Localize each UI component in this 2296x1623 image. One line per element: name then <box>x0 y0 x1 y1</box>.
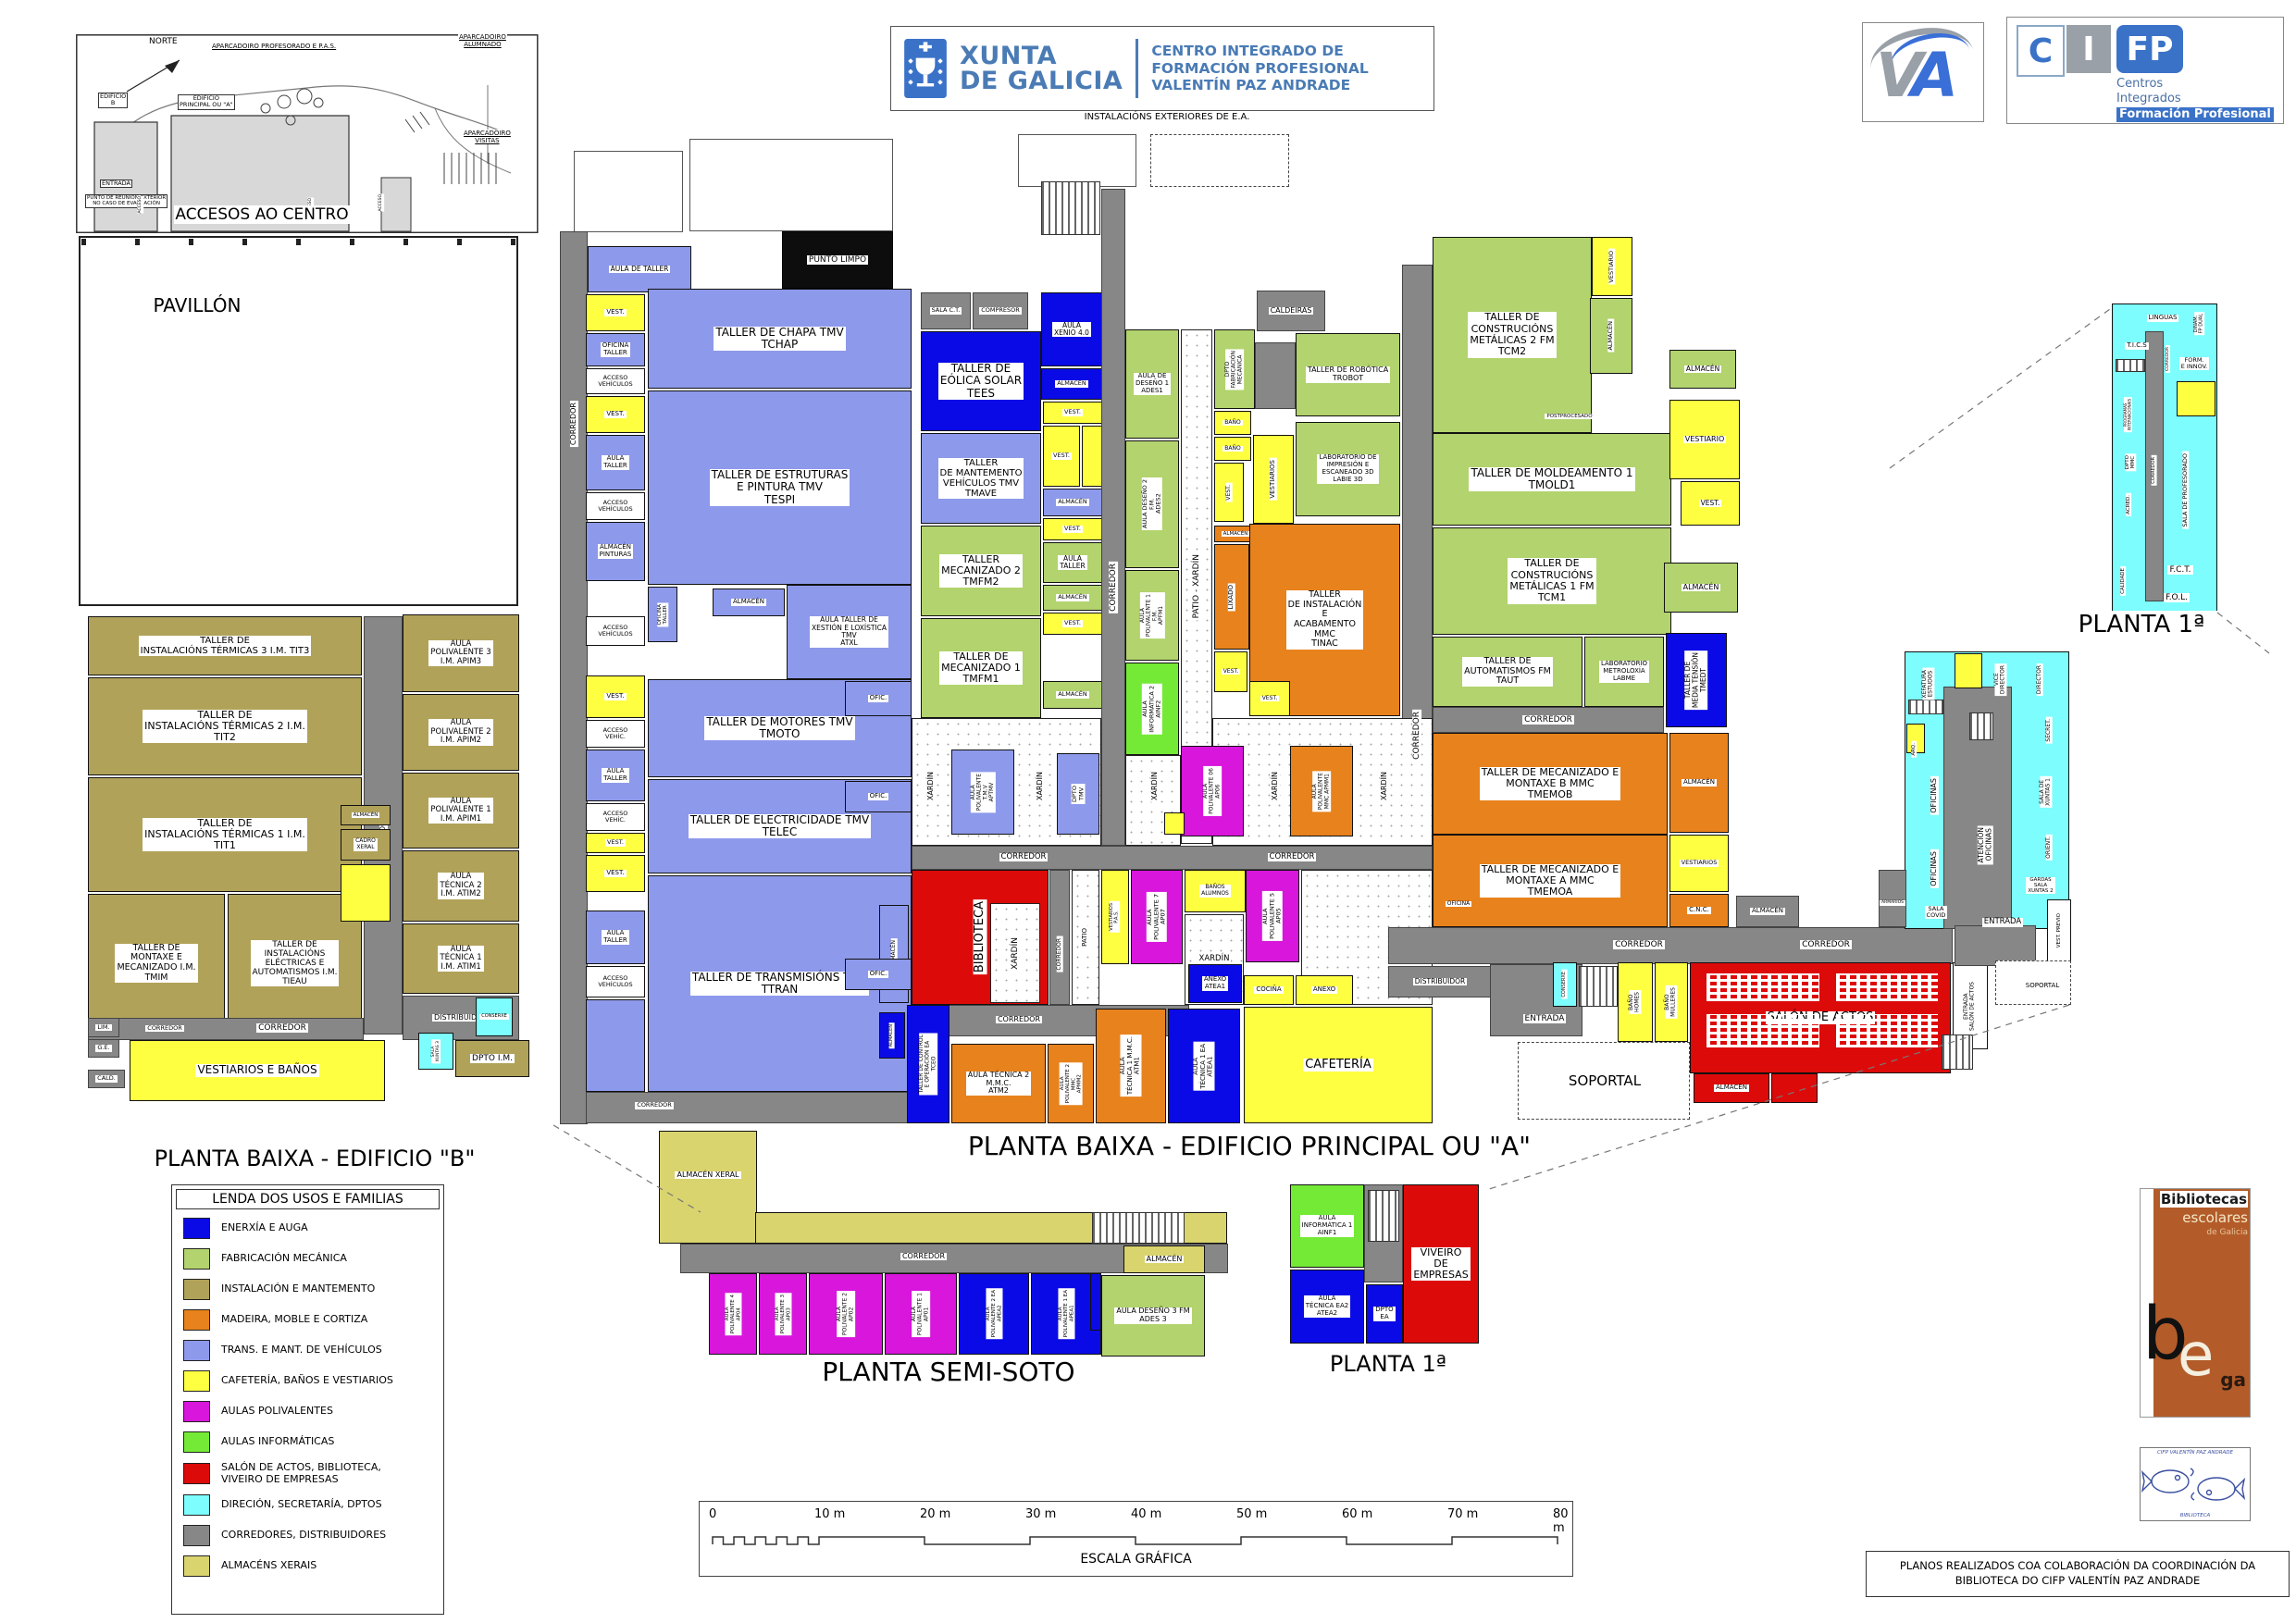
room-label: XEFATURA ESTUDOS <box>1922 668 1934 700</box>
room-label: SOPORTAL <box>2024 983 2061 990</box>
plan-title: PLANTA 1ª <box>1314 1351 1462 1377</box>
bibliotecas-escolares-logo: Bibliotecas escolares de Galicia b e ga <box>2140 1188 2251 1418</box>
belogo-e: e <box>2178 1326 2214 1385</box>
room-label: CADRO XERAL <box>354 838 378 850</box>
room-label: AULA INFORMÁTICA 1 AINF1 <box>1300 1215 1355 1236</box>
room-oficinas: OFICINAS <box>1921 838 1947 899</box>
plan-title: PLANTA BAIXA - EDIFICIO PRINCIPAL OU "A" <box>949 1131 1550 1161</box>
belogo-sub: escolares <box>2182 1209 2248 1226</box>
area <box>1969 712 1993 740</box>
room-label: OFICINAS <box>1930 776 1939 815</box>
belogo-title: Bibliotecas <box>2160 1191 2248 1208</box>
room-label: PROGRAMAS INTERNACIONAIS <box>2124 397 2132 432</box>
legend-swatch <box>183 1370 210 1392</box>
room-label: SOPORTAL <box>1567 1073 1643 1089</box>
legend-swatch <box>183 1309 210 1331</box>
legend-swatch <box>183 1401 210 1422</box>
room-label: XARDÍN <box>1036 770 1045 802</box>
legend-swatch <box>183 1463 210 1484</box>
room-label: CORREDOR <box>1800 940 1852 949</box>
stamp-bottom-text: BIBLIOTECA <box>2141 1513 2250 1518</box>
room-label: F.O.L. <box>2164 593 2190 602</box>
room-label: T.I.C.S <box>2125 342 2149 350</box>
room-almac-n: ALMACÉN <box>341 805 391 825</box>
legend-label: INSTALACIÓN E MANTEMENTO <box>221 1283 375 1295</box>
room-xard-n: XARDÍN <box>922 757 940 816</box>
legend-label: CORREDORES, DISTRIBUIDORES <box>221 1530 386 1542</box>
room-entrada: ENTRADA <box>1969 914 2036 931</box>
room-label: XARDÍN <box>927 770 936 802</box>
room-dpto: DPTO MMC <box>2117 446 2143 479</box>
room-label: CORREDOR <box>996 1016 1042 1024</box>
room-xard-n: XARDÍN <box>990 903 1040 1003</box>
legend-label: FABRICACIÓN MECÁNICA <box>221 1253 347 1265</box>
room-oficina: OFICINA <box>1436 896 1481 912</box>
room-label: AULA POLIVALENTE MMC APMM1 <box>1312 771 1331 811</box>
legend-item: MADEIRA, MOBLE E CORTIZA <box>172 1305 443 1335</box>
scale-tick: 10 m <box>814 1507 845 1521</box>
room-label: AULA POLIVALENTE 06 AP06 <box>1203 766 1222 816</box>
area <box>2177 381 2215 416</box>
room-label: VICE DIRECTOR <box>1994 663 2006 696</box>
room-label: ALMACÉN <box>352 812 380 818</box>
room-corredor: CORREDOR <box>2147 442 2162 498</box>
room-label: CORREDOR <box>1057 936 1063 973</box>
room-vice: VICE DIRECTOR <box>1984 653 2017 707</box>
room-f-o-l: F.O.L. <box>2151 587 2203 609</box>
legend-swatch <box>183 1555 210 1577</box>
room-postprocesado: POSTPROCESADO <box>1533 409 1607 424</box>
room-label: CONSERXE <box>1562 970 1568 999</box>
room-xard-n: XARDÍN <box>1031 757 1049 816</box>
room-almac-n-xeral: ALMACÉN XERAL <box>663 1168 753 1183</box>
legend-label: ENERXÍA E AUGA <box>221 1222 308 1234</box>
scale-tick: 30 m <box>1025 1507 1056 1521</box>
legend-title: LENDA DOS USOS E FAMILIAS <box>176 1189 440 1209</box>
legend-item: SALÓN DE ACTOS, BIBLIOTECA, VIVEIRO DE E… <box>172 1457 443 1490</box>
room-corredor: CORREDOR <box>242 1020 322 1036</box>
area <box>1706 1014 1819 1047</box>
scale-bar-drawing <box>707 1524 1568 1552</box>
room-label: SALA DE PROFESORADO <box>2182 452 2189 529</box>
legend-swatch <box>183 1494 210 1516</box>
room-sala-de: SALA DE XUNTAS 1 <box>2027 761 2066 824</box>
area <box>2116 359 2145 372</box>
room-label: CORREDOR <box>2152 455 2157 486</box>
room-label: SALA DE XUNTAS 1 <box>2040 776 2052 808</box>
legend-label: TRANS. E MANT. DE VEHÍCULOS <box>221 1344 382 1357</box>
scale-tick: 40 m <box>1131 1507 1161 1521</box>
legend-label: SALÓN DE ACTOS, BIBLIOTECA, VIVEIRO DE E… <box>221 1462 381 1485</box>
legend-swatch <box>183 1279 210 1300</box>
room-corredor: CORREDOR <box>1588 936 1690 953</box>
room-label: DPTO MMC <box>2125 453 2136 471</box>
legend-item: TRANS. E MANT. DE VEHÍCULOS <box>172 1335 443 1366</box>
plan-title: PLANTA BAIXA - EDIFICIO "B" <box>97 1146 532 1171</box>
room-linguas: LINGUAS <box>2138 309 2188 328</box>
legend-items: ENERXÍA E AUGAFABRICACIÓN MECÁNICAINSTAL… <box>172 1213 443 1581</box>
area <box>1955 653 1982 688</box>
room-corredor: CORREDOR <box>881 1249 966 1264</box>
area <box>341 864 391 922</box>
legend-item: AULAS INFORMÁTICAS <box>172 1427 443 1457</box>
room-label: ORIENT. <box>2046 835 2053 861</box>
room-atenci-n: ATENCIÓN OFICINAS <box>1966 803 2004 886</box>
plan-title: INSTALACIÓNS EXTERIORES DE E.A. <box>1035 112 1299 122</box>
room-label: ENTRADA <box>1982 918 2024 927</box>
fish-icon <box>2141 1459 2248 1509</box>
room-aula: AULA INFORMÁTICA 1 AINF1 <box>1290 1184 1364 1268</box>
legend: LENDA DOS USOS E FAMILIAS ENERXÍA E AUGA… <box>171 1184 444 1615</box>
room-dinam: DINAM. FP DUAL <box>2186 305 2214 342</box>
credits-line1: PLANOS REALIZADOS COA COLABORACIÓN DA CO… <box>1900 1559 2255 1574</box>
room-corredor: CORREDOR <box>1775 936 1877 953</box>
floor-plan-sheet: NORTEAPARCADOIRO PROFESORADO E P.A.S.APA… <box>0 0 2296 1623</box>
room-aula: AULA TÉCNICA EA2 ATEA2 <box>1290 1270 1364 1344</box>
room-oficinas: OFICINAS <box>1921 757 1947 835</box>
legend-item: DIRECIÓN, SECRETARÍA, DPTOS <box>172 1490 443 1520</box>
room-label: CORREDOR <box>145 1025 183 1032</box>
legend-label: DIRECIÓN, SECRETARÍA, DPTOS <box>221 1499 382 1511</box>
room-label: ACRED. <box>2126 493 2131 516</box>
room-cadro: CADRO XERAL <box>341 829 391 861</box>
room-label: FORM. E INNOV. <box>2179 357 2210 371</box>
room-label: DINAM. FP DUAL <box>2194 312 2204 335</box>
room-aula: AULA POLIVALENTE MMC APMM1 <box>1290 746 1353 836</box>
room-gardas: GARDAS SALA XUNTAS 2 <box>2016 868 2066 903</box>
room-xard-n: XARDÍN <box>1146 757 1164 816</box>
room-label: ARMARIOS <box>1880 900 1905 905</box>
room-entrada: ENTRADA <box>1508 1010 1581 1027</box>
room-label: VIVEIRO DE EMPRESAS <box>1411 1247 1470 1282</box>
room-label: CORREDOR <box>1412 710 1421 762</box>
legend-item: FABRICACIÓN MECÁNICA <box>172 1244 443 1274</box>
room-t-i-c-s: T.I.C.S <box>2117 337 2156 355</box>
room-label: DPTO TMV <box>1072 784 1086 804</box>
legend-item: AULAS POLIVALENTES <box>172 1396 443 1427</box>
room-soportal: SOPORTAL <box>2014 979 2071 994</box>
room-secret: SECRET. <box>2034 709 2064 751</box>
room-label: CORREDOR <box>1613 940 1665 949</box>
legend-item: CAFETERÍA, BAÑOS E VESTIARIOS <box>172 1366 443 1396</box>
room-viveiro: VIVEIRO DE EMPRESAS <box>1403 1184 1479 1344</box>
room-label: ALMACÉN XERAL <box>675 1171 740 1180</box>
room-label: OFICINA <box>1446 901 1472 908</box>
room-conserxe: CONSERXE <box>1553 962 1577 1007</box>
room-label: GARDAS SALA XUNTAS 2 <box>2026 877 2054 894</box>
room-corredor: CORREDOR <box>979 849 1068 865</box>
room-label: CORREDOR <box>2166 345 2170 373</box>
room-soportal: SOPORTAL <box>1551 1070 1658 1092</box>
room-xard-n: XARDÍN <box>1375 757 1394 816</box>
legend-item: ENERXÍA E AUGA <box>172 1213 443 1244</box>
legend-label: AULAS INFORMÁTICAS <box>221 1436 334 1448</box>
room-corredor: CORREDOR <box>977 1012 1061 1027</box>
room-label: VEST. <box>1260 696 1280 702</box>
room-dpto: DPTO TMV <box>1057 753 1099 835</box>
room-label: CORREDOR <box>256 1023 308 1033</box>
room-label: XARDÍN <box>1011 935 1020 972</box>
belogo-ga: ga <box>2220 1369 2246 1391</box>
legend-swatch <box>183 1248 210 1270</box>
scale-tick: 0 <box>709 1507 716 1521</box>
room-label: CONSERXE <box>479 1014 509 1020</box>
area <box>1706 973 1819 1001</box>
room-label: OFIC. <box>868 971 889 978</box>
legend-label: ALMACÉNS XERAIS <box>221 1560 316 1572</box>
plan-title: PLANTA 1ª <box>2062 611 2221 638</box>
room-form: FORM. E INNOV. <box>2173 352 2215 376</box>
room-label: AULA TÉCNICA EA2 ATEA2 <box>1304 1295 1350 1317</box>
room-orient: ORIENT. <box>2034 827 2064 868</box>
legend-item: CORREDORES, DISTRIBUIDORES <box>172 1520 443 1551</box>
area <box>1164 812 1185 835</box>
room-label: XARDÍN <box>1272 770 1280 802</box>
room-aula: AULA POLIVALENTE 06 AP06 <box>1181 746 1244 836</box>
scale-tick: 80 m <box>1553 1507 1572 1535</box>
room-corredor: CORREDOR <box>1051 922 1068 986</box>
scale-label: ESCALA GRÁFICA <box>700 1552 1572 1567</box>
room-label: SECRET. <box>2046 717 2053 744</box>
room-label: F.C.T. <box>2167 565 2192 575</box>
area <box>1368 1190 1399 1242</box>
plan-title: PAVILLÓN <box>137 294 257 316</box>
credits-line2: BIBLIOTECA DO CIFP VALENTÍN PAZ ANDRADE <box>1955 1574 2200 1589</box>
room-label: CALIDADE <box>2120 566 2126 596</box>
room-corredor: CORREDOR <box>563 384 585 464</box>
plan-title: ACCESOS AO CENTRO <box>174 205 350 224</box>
room-sala: SALA COVID <box>1916 899 1956 925</box>
room-corredor: CORREDOR <box>1405 685 1430 787</box>
scale-tick: 60 m <box>1342 1507 1372 1521</box>
room-programas: PROGRAMAS INTERNACIONAIS <box>2116 387 2140 442</box>
room-armarios: ARMARIOS <box>1877 898 1908 909</box>
stamp-top-text: CIFP VALENTÍN PAZ ANDRADE <box>2141 1450 2250 1456</box>
room-label: ATENCIÓN OFICINAS <box>1978 825 1993 864</box>
legend-swatch <box>183 1431 210 1453</box>
room-label: XARDÍN <box>1151 770 1160 802</box>
room-label: DPTO EA <box>1373 1307 1395 1321</box>
room-xard-n: XARDÍN <box>1266 757 1285 816</box>
room-aula: AULA POLIVALENTE T.M.V APTMV <box>951 750 1014 835</box>
room-director: DIRECTOR <box>2025 653 2054 707</box>
scale-bar: 010 m20 m30 m40 m50 m60 m70 m80 m ESCALA… <box>699 1501 1573 1577</box>
room-corredor: CORREDOR <box>1247 849 1336 865</box>
room-corredor: CORREDOR <box>1103 537 1123 638</box>
legend-item: ALMACÉNS XERAIS <box>172 1551 443 1581</box>
room-conserxe: CONSERXE <box>476 997 513 1036</box>
room-acred: ACRED. <box>2117 485 2140 524</box>
room-label: POSTPROCESADO <box>1545 414 1594 419</box>
area <box>1836 973 1938 1001</box>
belogo-region: de Galicia <box>2206 1228 2248 1237</box>
room-corredor: CORREDOR <box>139 1022 191 1035</box>
legend-swatch <box>183 1340 210 1361</box>
room-label: CORREDOR <box>570 401 578 447</box>
scale-tick: 50 m <box>1236 1507 1267 1521</box>
room-label: OFICINAS <box>1930 849 1939 888</box>
room-label: CORREDOR <box>999 853 1049 862</box>
room-calidade: CALIDADE <box>2112 555 2134 607</box>
room-label: CORREDOR <box>900 1253 947 1261</box>
area <box>1836 1014 1938 1047</box>
room-label: CORREDOR <box>1268 853 1317 862</box>
credits-box: PLANOS REALIZADOS COA COLABORACIÓN DA CO… <box>1866 1551 2290 1597</box>
room-label: CORREDOR <box>1109 562 1118 613</box>
legend-label: AULAS POLIVALENTES <box>221 1406 333 1418</box>
room-label: LINGUAS <box>2147 315 2179 322</box>
legend-label: CAFETERÍA, BAÑOS E VESTIARIOS <box>221 1375 393 1387</box>
legend-swatch <box>183 1218 210 1239</box>
room-label: ENTRADA <box>1523 1014 1567 1023</box>
room-sala-de-profesorado: SALA DE PROFESORADO <box>2175 424 2197 557</box>
room-label: ARQ. <box>1911 741 1917 758</box>
room-label: DIRECTOR <box>2037 663 2043 696</box>
room-xefatura: XEFATURA ESTUDOS <box>1908 655 1949 712</box>
room-vest: VEST. <box>1249 681 1290 716</box>
room-dpto: DPTO EA <box>1366 1284 1403 1344</box>
legend-label: MADEIRA, MOBLE E CORTIZA <box>221 1314 367 1326</box>
scale-tick: 20 m <box>920 1507 950 1521</box>
room-corredor: CORREDOR <box>622 1099 687 1112</box>
room-label: SALA COVID <box>1925 906 1948 920</box>
legend-item: INSTALACIÓN E MANTEMENTO <box>172 1274 443 1305</box>
library-fish-stamp: CIFP VALENTÍN PAZ ANDRADE BIBLIOTECA <box>2140 1447 2251 1521</box>
room-ofic: OFIC. <box>845 959 912 990</box>
room-label: XARDÍN <box>1381 770 1389 802</box>
room-label: CORREDOR <box>635 1102 673 1109</box>
scale-tick: 70 m <box>1447 1507 1478 1521</box>
room-arq: ARQ. <box>1905 737 1923 762</box>
plan-title: PLANTA SEMI-SOTO <box>814 1357 1083 1387</box>
room-label: AULA POLIVALENTE T.M.V APTMV <box>971 772 996 812</box>
room-f-c-t: F.C.T. <box>2154 559 2206 581</box>
legend-swatch <box>183 1525 210 1546</box>
